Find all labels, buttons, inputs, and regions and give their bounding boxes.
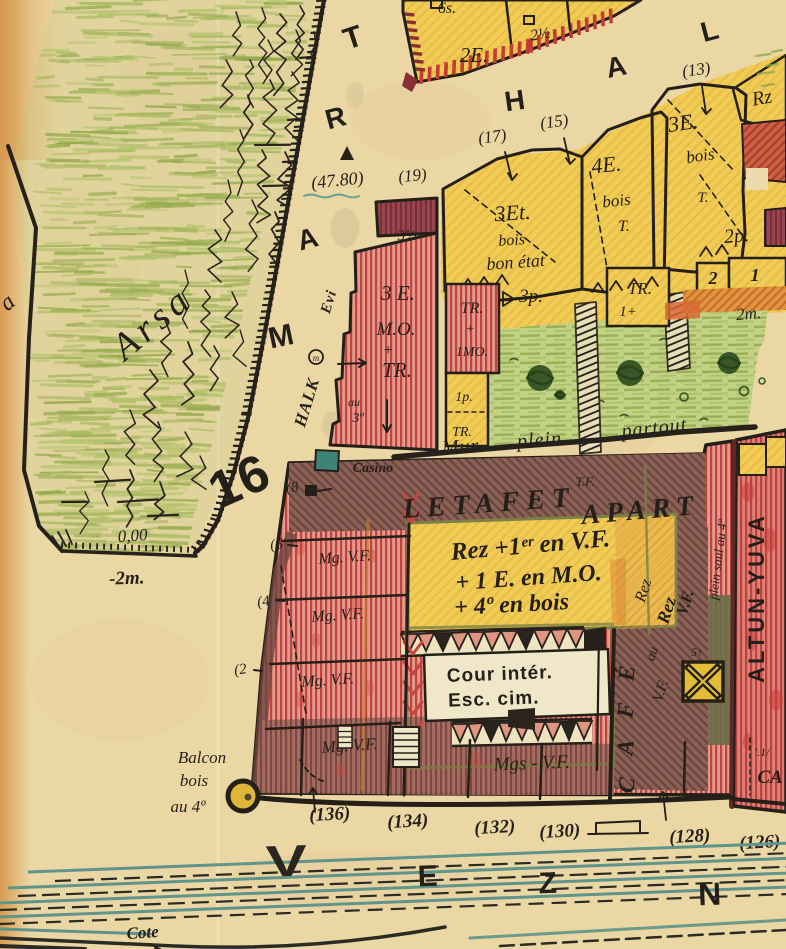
svg-text:6s.: 6s. <box>438 0 456 17</box>
svg-text:(19): (19) <box>397 165 427 187</box>
svg-text:-2m.: -2m. <box>109 567 145 589</box>
svg-text:Cour intér.: Cour intér. <box>446 662 553 687</box>
svg-text:T.: T. <box>698 190 709 206</box>
svg-text:(17): (17) <box>477 125 508 148</box>
svg-text:Mgs - V.F.: Mgs - V.F. <box>492 752 570 776</box>
svg-text:V: V <box>265 837 308 887</box>
svg-text:2p.: 2p. <box>723 224 750 248</box>
svg-text:m: m <box>313 353 320 363</box>
svg-text:1MO.: 1MO. <box>456 345 488 360</box>
svg-text:plein: plein <box>514 427 562 452</box>
svg-text:TR.: TR. <box>461 300 484 317</box>
svg-text:5↑: 5↑ <box>691 645 703 659</box>
svg-text:3 E.: 3 E. <box>380 281 415 305</box>
svg-text:Mur: Mur <box>440 435 480 460</box>
svg-text:C: C <box>613 776 639 794</box>
svg-text:'.1/: '.1/ <box>755 745 772 759</box>
svg-text:T.: T. <box>618 218 630 235</box>
svg-text:2½: 2½ <box>529 24 552 44</box>
svg-text:(15): (15) <box>539 110 570 133</box>
svg-text:A: A <box>612 739 638 758</box>
svg-text:3½: 3½ <box>397 228 417 244</box>
svg-text:Rz: Rz <box>749 85 774 110</box>
svg-text:(134): (134) <box>387 810 429 833</box>
svg-text:bon état: bon état <box>486 250 547 274</box>
svg-text:F: F <box>612 702 638 720</box>
svg-text:bois: bois <box>685 144 716 167</box>
svg-text:2: 2 <box>708 268 718 288</box>
svg-text:0,00: 0,00 <box>117 525 149 546</box>
svg-text:Z: Z <box>538 867 557 901</box>
svg-text:T.F.: T.F. <box>575 474 594 489</box>
svg-text:Casino: Casino <box>353 461 393 476</box>
svg-text:3E.: 3E. <box>665 108 699 137</box>
svg-text:É: É <box>613 665 639 683</box>
svg-text:H: H <box>503 84 527 118</box>
svg-text:+: + <box>383 342 394 359</box>
svg-text:ALTUN-YUVA: ALTUN-YUVA <box>744 513 769 683</box>
svg-text:(128): (128) <box>669 825 711 848</box>
svg-text:2m.: 2m. <box>735 303 762 324</box>
svg-text:2E.: 2E. <box>460 43 489 67</box>
svg-text:Esc. cim.: Esc. cim. <box>448 687 540 711</box>
svg-text:bois: bois <box>498 231 526 250</box>
svg-text:TR.: TR. <box>382 358 412 382</box>
svg-text:Balcon: Balcon <box>178 748 226 767</box>
svg-text:M.O.: M.O. <box>375 319 415 340</box>
svg-text:4E.: 4E. <box>590 151 622 179</box>
svg-text:bois: bois <box>180 771 209 790</box>
svg-text:3º: 3º <box>351 411 364 426</box>
svg-text:3p.: 3p. <box>518 286 543 307</box>
svg-text:1+: 1+ <box>619 304 637 320</box>
svg-text:au: au <box>348 395 360 409</box>
svg-text:E: E <box>417 860 438 894</box>
svg-text:1: 1 <box>751 265 760 285</box>
svg-text:+: + <box>465 322 474 337</box>
svg-text:1p.: 1p. <box>455 390 473 405</box>
svg-text:au 4º: au 4º <box>170 797 206 816</box>
svg-text:(130): (130) <box>539 820 581 843</box>
svg-text:3Et.: 3Et. <box>493 199 532 227</box>
svg-text:(13): (13) <box>681 58 712 81</box>
svg-text:CA: CA <box>757 767 782 788</box>
svg-text:bois: bois <box>601 190 632 212</box>
svg-text:(132): (132) <box>474 816 516 839</box>
svg-text:N: N <box>697 876 721 913</box>
svg-text:Cote: Cote <box>126 922 160 943</box>
